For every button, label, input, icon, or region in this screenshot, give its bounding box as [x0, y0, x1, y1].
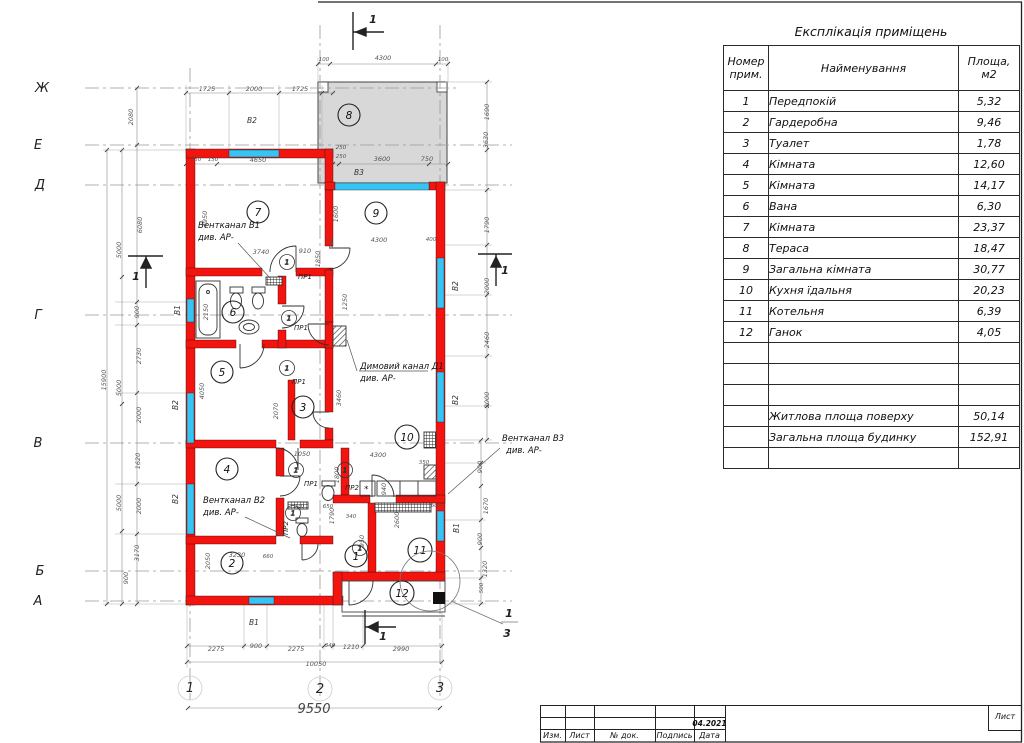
bidet — [252, 287, 265, 293]
svg-text:1: 1 — [501, 264, 509, 277]
col-header-number: Номер прим. — [724, 46, 769, 91]
svg-text:2000: 2000 — [483, 392, 491, 409]
svg-text:2000: 2000 — [135, 407, 143, 424]
svg-text:6080: 6080 — [136, 217, 144, 234]
svg-text:2050: 2050 — [204, 553, 212, 570]
svg-text:1: 1 — [186, 681, 194, 696]
svg-text:3: 3 — [300, 402, 307, 414]
svg-text:ПР1: ПР1 — [294, 324, 308, 332]
svg-text:3: 3 — [503, 627, 511, 640]
svg-text:750: 750 — [421, 155, 433, 163]
svg-text:7: 7 — [255, 207, 262, 219]
sink — [239, 320, 259, 334]
tb-doc: № док. — [594, 731, 655, 740]
svg-text:4650: 4650 — [250, 156, 267, 164]
svg-text:3630: 3630 — [482, 132, 490, 149]
svg-text:400: 400 — [426, 237, 437, 243]
svg-text:3230: 3230 — [229, 551, 246, 559]
svg-text:2275: 2275 — [288, 645, 305, 653]
svg-text:1250: 1250 — [341, 294, 349, 311]
svg-text:900: 900 — [133, 306, 141, 318]
svg-text:2600: 2600 — [393, 512, 401, 529]
svg-text:1: 1 — [343, 467, 347, 475]
svg-text:1: 1 — [285, 365, 289, 373]
svg-text:1800: 1800 — [333, 467, 341, 484]
svg-text:1790: 1790 — [328, 508, 336, 525]
svg-text:1: 1 — [285, 259, 289, 267]
toilet — [230, 287, 243, 293]
svg-text:В: В — [34, 436, 43, 451]
svg-text:10: 10 — [400, 432, 414, 444]
svg-text:9: 9 — [373, 208, 380, 220]
svg-text:ПР1: ПР1 — [292, 378, 306, 386]
totals-row: Загальна площа будинку152,91 — [724, 427, 1020, 448]
svg-text:100: 100 — [319, 57, 330, 63]
table-row: 5Кімната14,17 — [724, 175, 1020, 196]
svg-text:250: 250 — [336, 154, 347, 160]
svg-text:100: 100 — [438, 57, 449, 63]
svg-text:4: 4 — [224, 464, 231, 476]
svg-text:600: 600 — [431, 503, 442, 509]
svg-text:В2: В2 — [171, 494, 180, 504]
svg-text:див. АР-: див. АР- — [505, 446, 542, 456]
svg-text:1: 1 — [505, 607, 513, 620]
detail-callout: 1 3 — [400, 551, 518, 640]
svg-text:340: 340 — [346, 514, 357, 520]
svg-text:1620: 1620 — [134, 453, 142, 470]
svg-text:4050: 4050 — [198, 383, 206, 400]
table-row: 1Передпокій5,32 — [724, 91, 1020, 112]
svg-text:4300: 4300 — [375, 54, 392, 62]
svg-text:2000: 2000 — [483, 278, 491, 295]
svg-text:1670: 1670 — [482, 498, 490, 515]
kitchen-unit — [424, 432, 436, 448]
svg-text:3460: 3460 — [335, 390, 343, 407]
svg-text:ПР1: ПР1 — [298, 273, 312, 281]
svg-text:2070: 2070 — [272, 403, 280, 420]
svg-text:10050: 10050 — [306, 660, 327, 668]
svg-text:900: 900 — [250, 642, 262, 650]
svg-text:2: 2 — [316, 682, 324, 697]
svg-text:250: 250 — [191, 157, 202, 163]
svg-text:1725: 1725 — [292, 85, 309, 93]
table-row: 6Вана6,30 — [724, 196, 1020, 217]
svg-text:8: 8 — [346, 110, 353, 122]
explication-table: Номер прим. Найменування Площа, м2 1Пере… — [723, 45, 1020, 469]
svg-text:1690: 1690 — [483, 104, 491, 121]
svg-text:2000: 2000 — [135, 498, 143, 515]
svg-text:5000: 5000 — [115, 495, 123, 512]
svg-text:2460: 2460 — [483, 332, 491, 349]
svg-text:900: 900 — [476, 461, 484, 473]
svg-text:Е: Е — [34, 138, 43, 153]
svg-text:500: 500 — [479, 582, 485, 593]
table-row: 10Кухня їдальня20,23 — [724, 280, 1020, 301]
svg-text:950: 950 — [358, 535, 366, 547]
svg-text:2730: 2730 — [135, 348, 143, 365]
table-row: 2Гардеробна9,46 — [724, 112, 1020, 133]
svg-text:2: 2 — [229, 558, 236, 570]
svg-text:1: 1 — [132, 270, 140, 283]
svg-text:1: 1 — [369, 13, 377, 26]
tb-sheet: Лист — [988, 712, 1022, 721]
svg-text:В3: В3 — [354, 168, 364, 177]
tb-date-value: 04.2021 — [690, 719, 729, 728]
title-block: Изм. Лист № док. Подпись Дата 04.2021 Ли… — [540, 705, 1022, 742]
svg-text:В2: В2 — [451, 395, 460, 405]
table-row: 12Ганок4,05 — [724, 322, 1020, 343]
svg-text:В2: В2 — [247, 116, 257, 125]
svg-text:6: 6 — [230, 307, 237, 319]
chimney-d1-label: Димовий канал Д1 — [359, 362, 444, 372]
svg-text:1: 1 — [294, 467, 298, 475]
svg-text:4300: 4300 — [370, 451, 387, 459]
table-row: 8Тераса18,47 — [724, 238, 1020, 259]
svg-text:2000: 2000 — [246, 85, 263, 93]
table-row: 7Кімната23,37 — [724, 217, 1020, 238]
svg-text:940: 940 — [380, 483, 388, 495]
svg-text:ПР1: ПР1 — [304, 480, 318, 488]
svg-text:1: 1 — [379, 630, 387, 643]
svg-text:3600: 3600 — [374, 155, 391, 163]
svg-text:2990: 2990 — [393, 645, 410, 653]
svg-text:В1: В1 — [173, 305, 182, 315]
chimney — [333, 326, 346, 346]
svg-text:3170: 3170 — [133, 545, 141, 562]
svg-text:див. АР-: див. АР- — [197, 233, 234, 243]
svg-text:9550: 9550 — [297, 702, 330, 717]
vent-b2-label: Вентканал В2 — [203, 496, 265, 506]
svg-text:див. АР-: див. АР- — [359, 374, 396, 384]
col-header-name: Найменування — [769, 46, 959, 91]
svg-text:див. АР-: див. АР- — [202, 508, 239, 518]
svg-text:5000: 5000 — [115, 242, 123, 259]
tb-list: Лист — [565, 731, 594, 740]
table-row: 11Котельня6,39 — [724, 301, 1020, 322]
counter-sink — [375, 503, 431, 512]
tb-izm: Изм. — [540, 731, 565, 740]
col-header-area: Площа, м2 — [959, 46, 1020, 91]
svg-text:1: 1 — [353, 551, 360, 563]
svg-text:1: 1 — [291, 510, 295, 518]
explication-title: Експлікація приміщень — [723, 24, 1019, 39]
svg-text:4300: 4300 — [371, 236, 388, 244]
svg-text:3: 3 — [436, 681, 444, 696]
vent-grille — [266, 277, 282, 285]
svg-text:900: 900 — [122, 572, 130, 584]
svg-text:3740: 3740 — [253, 248, 270, 256]
explication-panel: Експлікація приміщень Номер прим. Наймен… — [723, 24, 1019, 469]
table-row: 3Туалет1,78 — [724, 133, 1020, 154]
table-header-row: Номер прим. Найменування Площа, м2 — [724, 46, 1020, 91]
empty-row — [724, 448, 1020, 469]
vent-b3-label: Вентканал В3 — [502, 434, 564, 444]
svg-text:Г: Г — [34, 308, 43, 323]
svg-text:910: 910 — [294, 504, 305, 510]
svg-text:1210: 1210 — [343, 643, 360, 651]
svg-text:Ж: Ж — [34, 81, 50, 96]
svg-text:В1: В1 — [249, 618, 259, 627]
svg-text:1725: 1725 — [199, 85, 216, 93]
svg-text:2275: 2275 — [208, 645, 225, 653]
svg-text:ПР2: ПР2 — [282, 520, 290, 534]
svg-text:В2: В2 — [451, 281, 460, 291]
svg-text:910: 910 — [299, 247, 311, 255]
svg-text:150: 150 — [208, 157, 219, 163]
svg-text:1600: 1600 — [332, 206, 340, 223]
svg-text:650: 650 — [323, 504, 334, 510]
terrace-area — [318, 82, 447, 183]
svg-text:15900: 15900 — [100, 370, 108, 391]
svg-text:1790: 1790 — [483, 217, 491, 234]
svg-text:1320: 1320 — [481, 561, 489, 578]
svg-text:350: 350 — [419, 460, 430, 466]
svg-text:250: 250 — [336, 145, 347, 151]
svg-text:Б: Б — [36, 564, 45, 579]
table-row: 9Загальна кімната30,77 — [724, 259, 1020, 280]
tb-date-label: Дата — [694, 731, 725, 740]
svg-text:1850: 1850 — [314, 251, 322, 268]
svg-text:5: 5 — [219, 367, 226, 379]
empty-row — [724, 343, 1020, 364]
svg-text:4950: 4950 — [201, 211, 209, 228]
empty-row — [724, 364, 1020, 385]
svg-text:2080: 2080 — [127, 109, 135, 126]
svg-text:ПР2: ПР2 — [345, 484, 359, 492]
svg-text:660: 660 — [263, 554, 274, 560]
svg-text:5000: 5000 — [115, 380, 123, 397]
svg-text:А: А — [33, 594, 43, 609]
empty-row — [724, 385, 1020, 406]
svg-text:В2: В2 — [171, 400, 180, 410]
svg-text:100: 100 — [329, 237, 335, 248]
svg-text:1: 1 — [287, 315, 291, 323]
svg-text:340: 340 — [325, 643, 336, 649]
svg-text:12: 12 — [395, 588, 409, 600]
kitchen-unit-2 — [424, 465, 436, 479]
drawing-sheet: 1 1 1 1 1 1 1 ПР1 ПР1 ПР1 ПР1 ПР2 ПР2 1 … — [0, 0, 1024, 743]
tb-sign: Подпись — [655, 731, 694, 740]
svg-text:900: 900 — [476, 533, 484, 545]
svg-text:1050: 1050 — [294, 450, 311, 458]
table-row: 4Кімната12,60 — [724, 154, 1020, 175]
totals-row: Житлова площа поверху50,14 — [724, 406, 1020, 427]
svg-text:В1: В1 — [452, 523, 461, 533]
svg-text:2150: 2150 — [202, 304, 210, 321]
svg-text:Д: Д — [34, 178, 45, 193]
burner-icon: * — [364, 485, 369, 495]
